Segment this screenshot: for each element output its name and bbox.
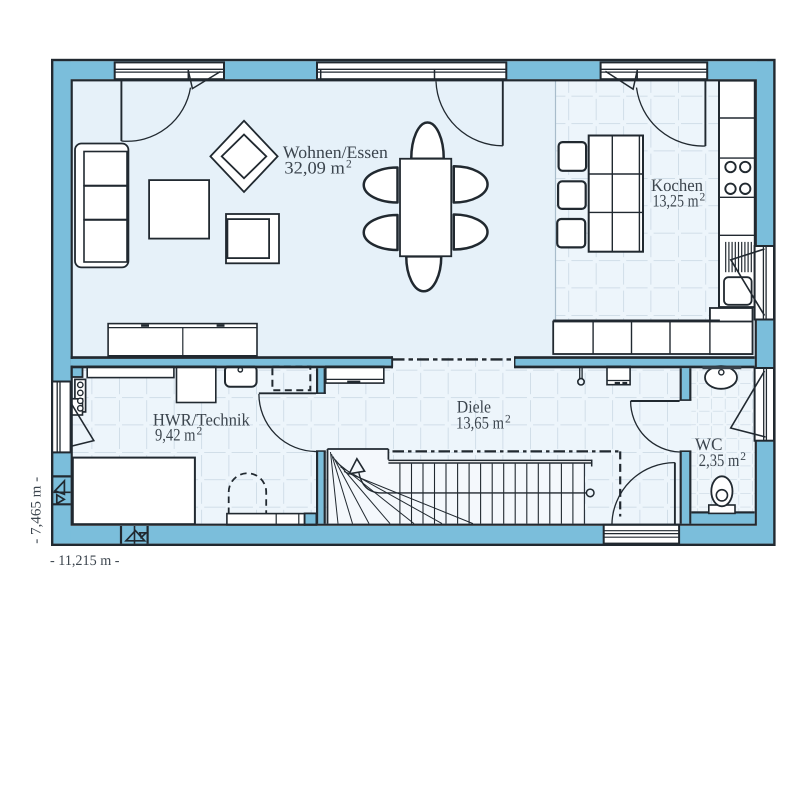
svg-text:13,65 m: 13,65 m [456, 413, 504, 433]
svg-text:32,09 m: 32,09 m [284, 157, 345, 177]
svg-text:2: 2 [505, 414, 511, 426]
svg-text:13,25 m: 13,25 m [653, 191, 699, 211]
svg-text:- 11,215 m -: - 11,215 m - [50, 553, 120, 569]
svg-text:- 7,465 m -: - 7,465 m - [28, 477, 44, 544]
svg-text:2,35 m: 2,35 m [699, 450, 740, 470]
svg-text:2: 2 [346, 158, 352, 170]
svg-text:9,42 m: 9,42 m [155, 425, 196, 445]
svg-text:2: 2 [700, 192, 706, 204]
svg-text:2: 2 [740, 451, 746, 463]
svg-text:2: 2 [197, 426, 203, 438]
